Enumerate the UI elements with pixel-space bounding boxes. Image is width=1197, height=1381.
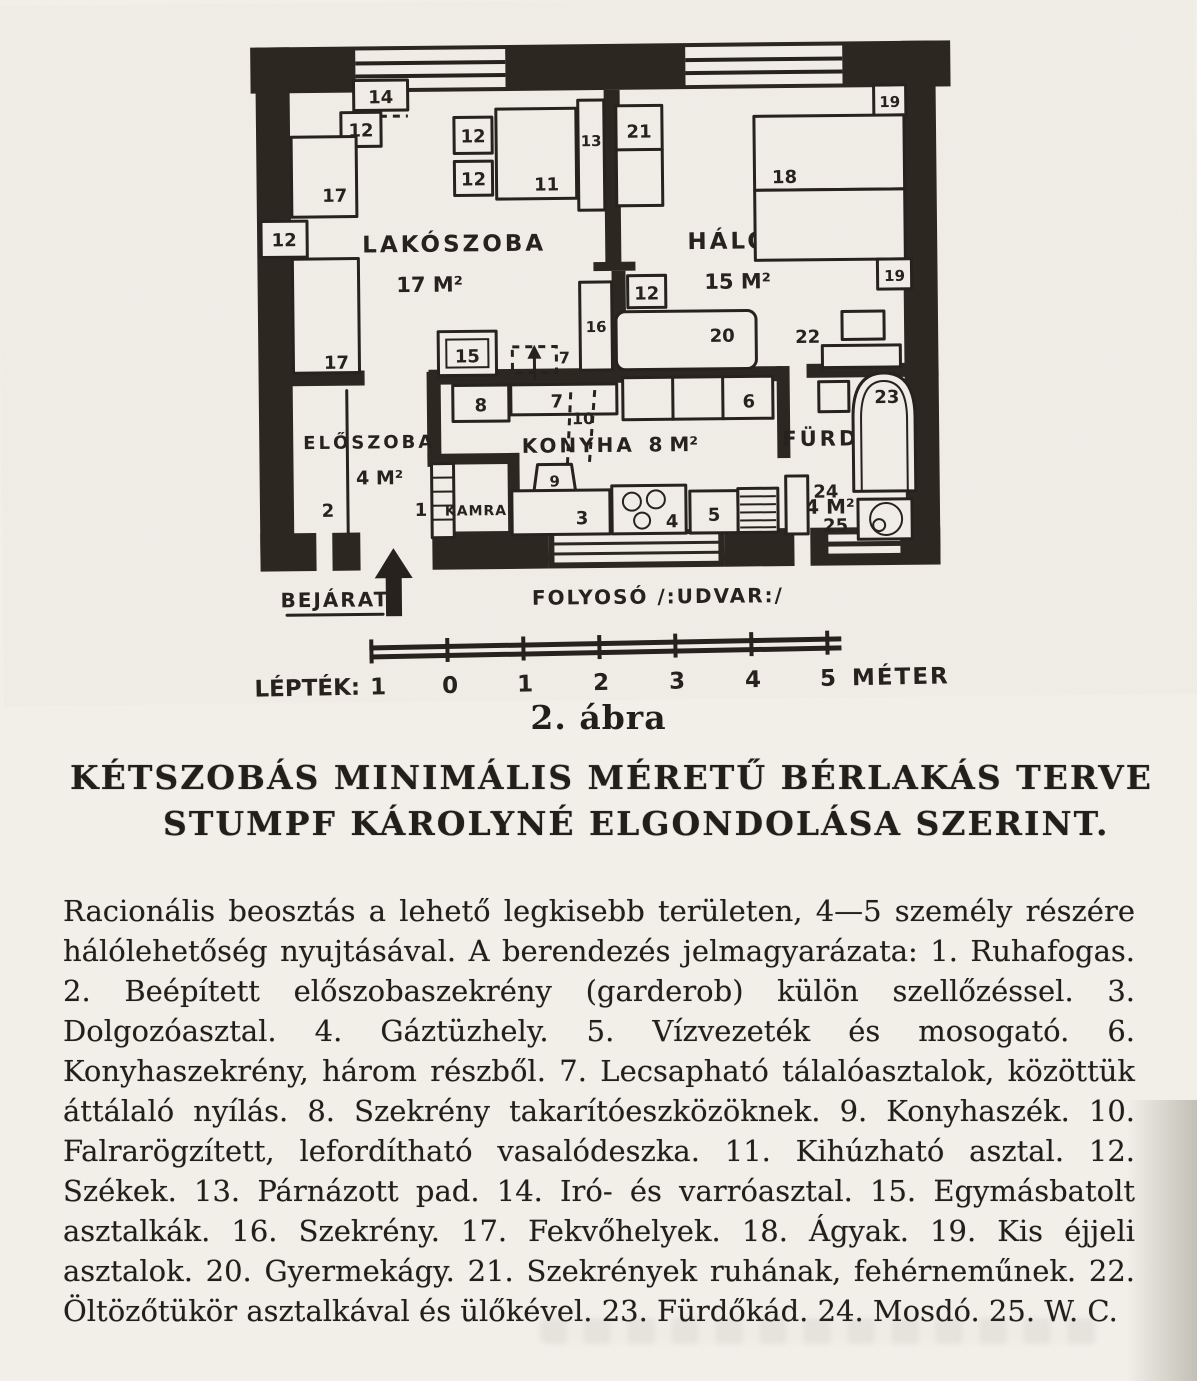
scan-edge-shadow [1127,1100,1197,1381]
figure-caption: 2. ábra [0,698,1197,737]
legend-paragraph: Racionális beosztás a lehető legkisebb t… [63,891,1135,1331]
paper-grain [0,0,1197,706]
legend-items: 1. Ruhafogas. 2. Beépített előszobaszekr… [63,934,1135,1328]
page-title-line2: STUMPF KÁROLYNÉ ELGONDOLÁSA SZERINT. [163,804,1041,843]
page-title-line1: KÉTSZOBÁS MINIMÁLIS MÉRETŰ BÉRLAKÁS TERV… [70,758,1127,797]
ink-bleedthrough [540,1318,1100,1344]
floor-plan-figure: LAKÓSZOBA 17 M² 14 12 12 12 11 13 [0,0,1197,706]
